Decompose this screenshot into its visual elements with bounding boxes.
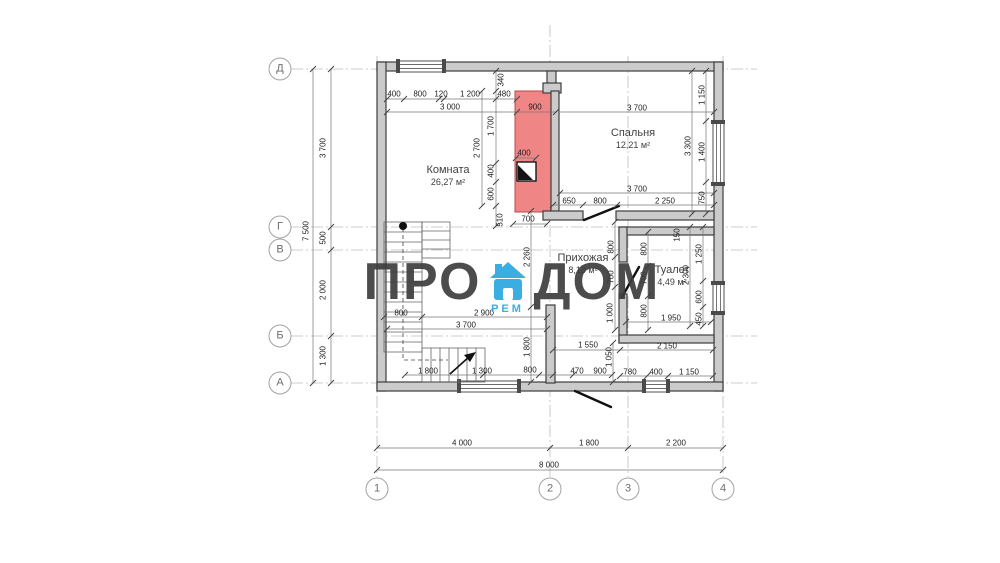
dimension-label: 800 bbox=[593, 197, 606, 206]
dimension-label: 1 150 bbox=[698, 85, 707, 105]
room-label-spalnya: Спальня12,21 м² bbox=[611, 126, 655, 152]
window-right-upper bbox=[711, 120, 725, 186]
wall-toilet-top bbox=[619, 227, 714, 235]
dimension-label: 3 300 bbox=[684, 136, 693, 156]
dimension-label: 400 bbox=[517, 149, 530, 158]
bedroom-door-swing bbox=[584, 206, 619, 220]
dimension-label: 1 300 bbox=[472, 367, 492, 376]
dimension-label: 1 700 bbox=[487, 116, 496, 136]
dimension-label: 2 250 bbox=[655, 197, 675, 206]
house-icon bbox=[490, 262, 526, 302]
dimension-label: 500 bbox=[319, 231, 328, 244]
dimension-label: 3 000 bbox=[440, 103, 460, 112]
dimension-label: 1 150 bbox=[679, 368, 699, 377]
dimension-label: 400 bbox=[487, 164, 496, 177]
axis-circle-Б: Б bbox=[269, 325, 292, 348]
axis-circle-Г: Г bbox=[269, 216, 292, 239]
watermark-text-right: ДОМ bbox=[534, 260, 661, 306]
dimension-label: 1 800 bbox=[523, 337, 532, 357]
dimension-label: 2 700 bbox=[473, 138, 482, 158]
dimension-label: 900 bbox=[528, 103, 541, 112]
axis-circle-1: 1 bbox=[366, 478, 389, 501]
dimension-label: 1 550 bbox=[578, 341, 598, 350]
dimension-label: 1 050 bbox=[605, 347, 614, 367]
dimension-label: 800 bbox=[413, 90, 426, 99]
dimension-label: 2 200 bbox=[666, 439, 686, 448]
axis-circle-2: 2 bbox=[539, 478, 562, 501]
wall-bedroom-bottom-right bbox=[616, 211, 714, 220]
dimension-label: 650 bbox=[562, 197, 575, 206]
dimension-label: 400 bbox=[649, 368, 662, 377]
watermark-subtext: РЕМ bbox=[491, 303, 524, 315]
window-bottom-right bbox=[642, 379, 670, 393]
dimension-label: 120 bbox=[434, 90, 447, 99]
axis-circle-4: 4 bbox=[712, 478, 735, 501]
entrance-door-swing bbox=[575, 391, 611, 407]
dimension-label: 750 bbox=[698, 191, 707, 204]
axis-circle-В: В bbox=[269, 239, 292, 262]
dimension-label: 510 bbox=[496, 213, 505, 226]
dimension-label: 800 bbox=[523, 366, 536, 375]
dimension-label: 1 200 bbox=[460, 90, 480, 99]
axis-circle-Д: Д bbox=[269, 58, 292, 81]
dimension-label: 1 800 bbox=[418, 367, 438, 376]
dimension-label: 470 bbox=[570, 367, 583, 376]
axis-circle-3: 3 bbox=[617, 478, 640, 501]
dimension-label: 340 bbox=[497, 73, 506, 86]
dimension-label: 3 700 bbox=[319, 138, 328, 158]
dimension-label: 2 150 bbox=[657, 342, 677, 351]
dimension-label: 1 300 bbox=[319, 346, 328, 366]
wall-shaft-right bbox=[551, 91, 559, 212]
watermark-house-block: РЕМ bbox=[490, 262, 526, 315]
dimension-label: 3 700 bbox=[627, 104, 647, 113]
vent-duct-symbol bbox=[517, 162, 536, 181]
dimension-label: 780 bbox=[623, 368, 636, 377]
dimension-label: 600 bbox=[487, 187, 496, 200]
room-label-komnata: Комната26,27 м² bbox=[426, 163, 469, 189]
dimension-label: 4 000 bbox=[452, 439, 472, 448]
dimension-label: 480 bbox=[497, 90, 510, 99]
watermark-text-left: ПРО bbox=[364, 260, 482, 306]
dimension-label: 900 bbox=[593, 367, 606, 376]
floor-plan: ПРО РЕМ ДОМ Комната26,27 м²Спальня12,21 … bbox=[0, 0, 1000, 563]
dimension-label: 8 000 bbox=[539, 461, 559, 470]
watermark-logo: ПРО РЕМ ДОМ bbox=[312, 260, 712, 315]
dimension-label: 3 700 bbox=[456, 321, 476, 330]
window-top bbox=[396, 59, 446, 73]
window-right-lower bbox=[711, 281, 725, 315]
dimension-label: 7 500 bbox=[302, 221, 311, 241]
dimension-label: 150 bbox=[673, 228, 682, 241]
dimension-label: 800 bbox=[607, 240, 616, 253]
dimension-label: 3 700 bbox=[627, 185, 647, 194]
dimension-label: 700 bbox=[521, 215, 534, 224]
axis-circle-А: А bbox=[269, 372, 292, 395]
wall-bedroom-bottom-left bbox=[543, 211, 583, 220]
dimension-label: 1 800 bbox=[579, 439, 599, 448]
stair-post-marker bbox=[399, 222, 407, 230]
dimension-label: 1 400 bbox=[698, 142, 707, 162]
dimension-label: 400 bbox=[387, 90, 400, 99]
